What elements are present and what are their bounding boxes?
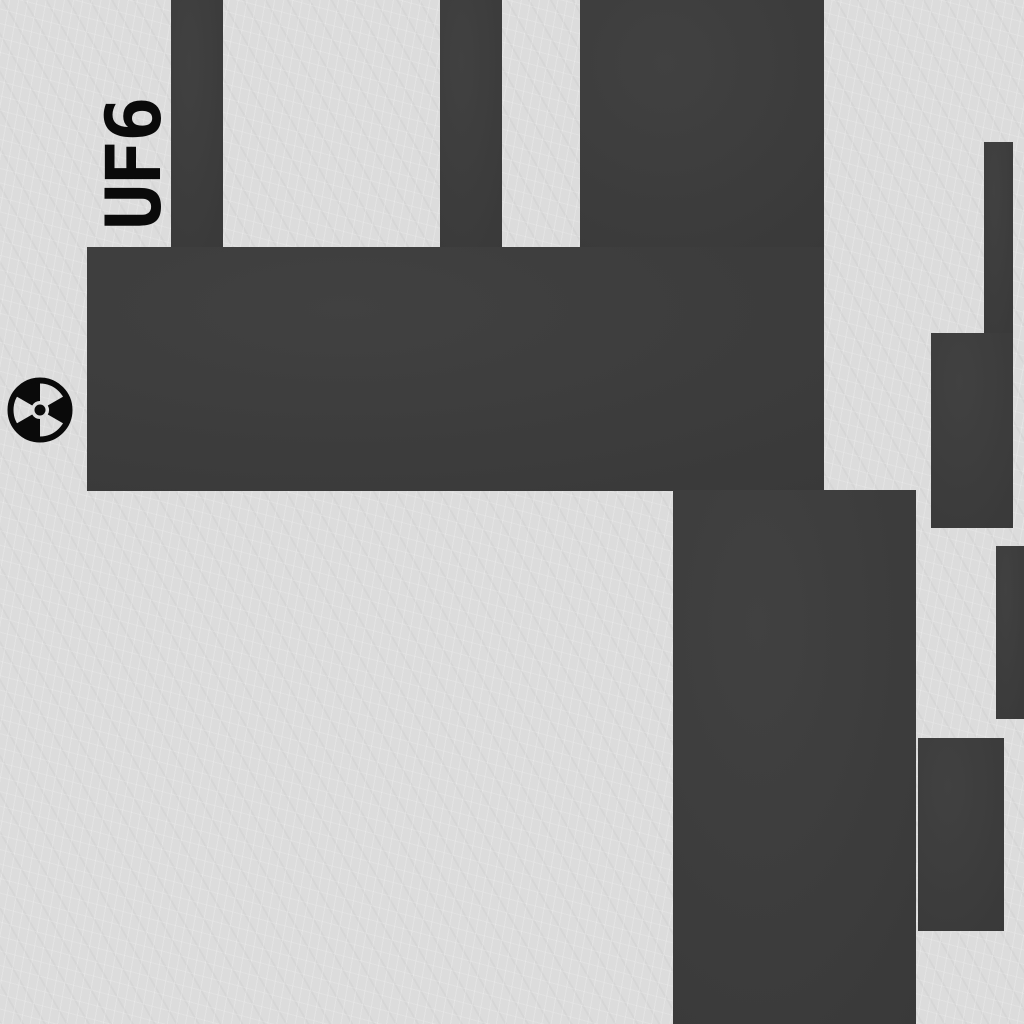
uf6-label: UF6 [104, 94, 164, 234]
radiation-trefoil-icon [7, 377, 73, 443]
lower-column [673, 490, 916, 1024]
right-edge-block [996, 546, 1024, 719]
right-strip [984, 142, 1013, 335]
trefoil-blade-right [48, 396, 68, 424]
trefoil-center-dot [35, 405, 46, 416]
facility-map: UF6 [0, 0, 1024, 1024]
right-block-lower [918, 738, 1004, 931]
top-block [580, 0, 824, 250]
horizontal-band [87, 247, 824, 491]
right-block-upper [931, 333, 1013, 528]
top-strip-left [171, 0, 223, 247]
top-strip-middle [440, 0, 502, 247]
